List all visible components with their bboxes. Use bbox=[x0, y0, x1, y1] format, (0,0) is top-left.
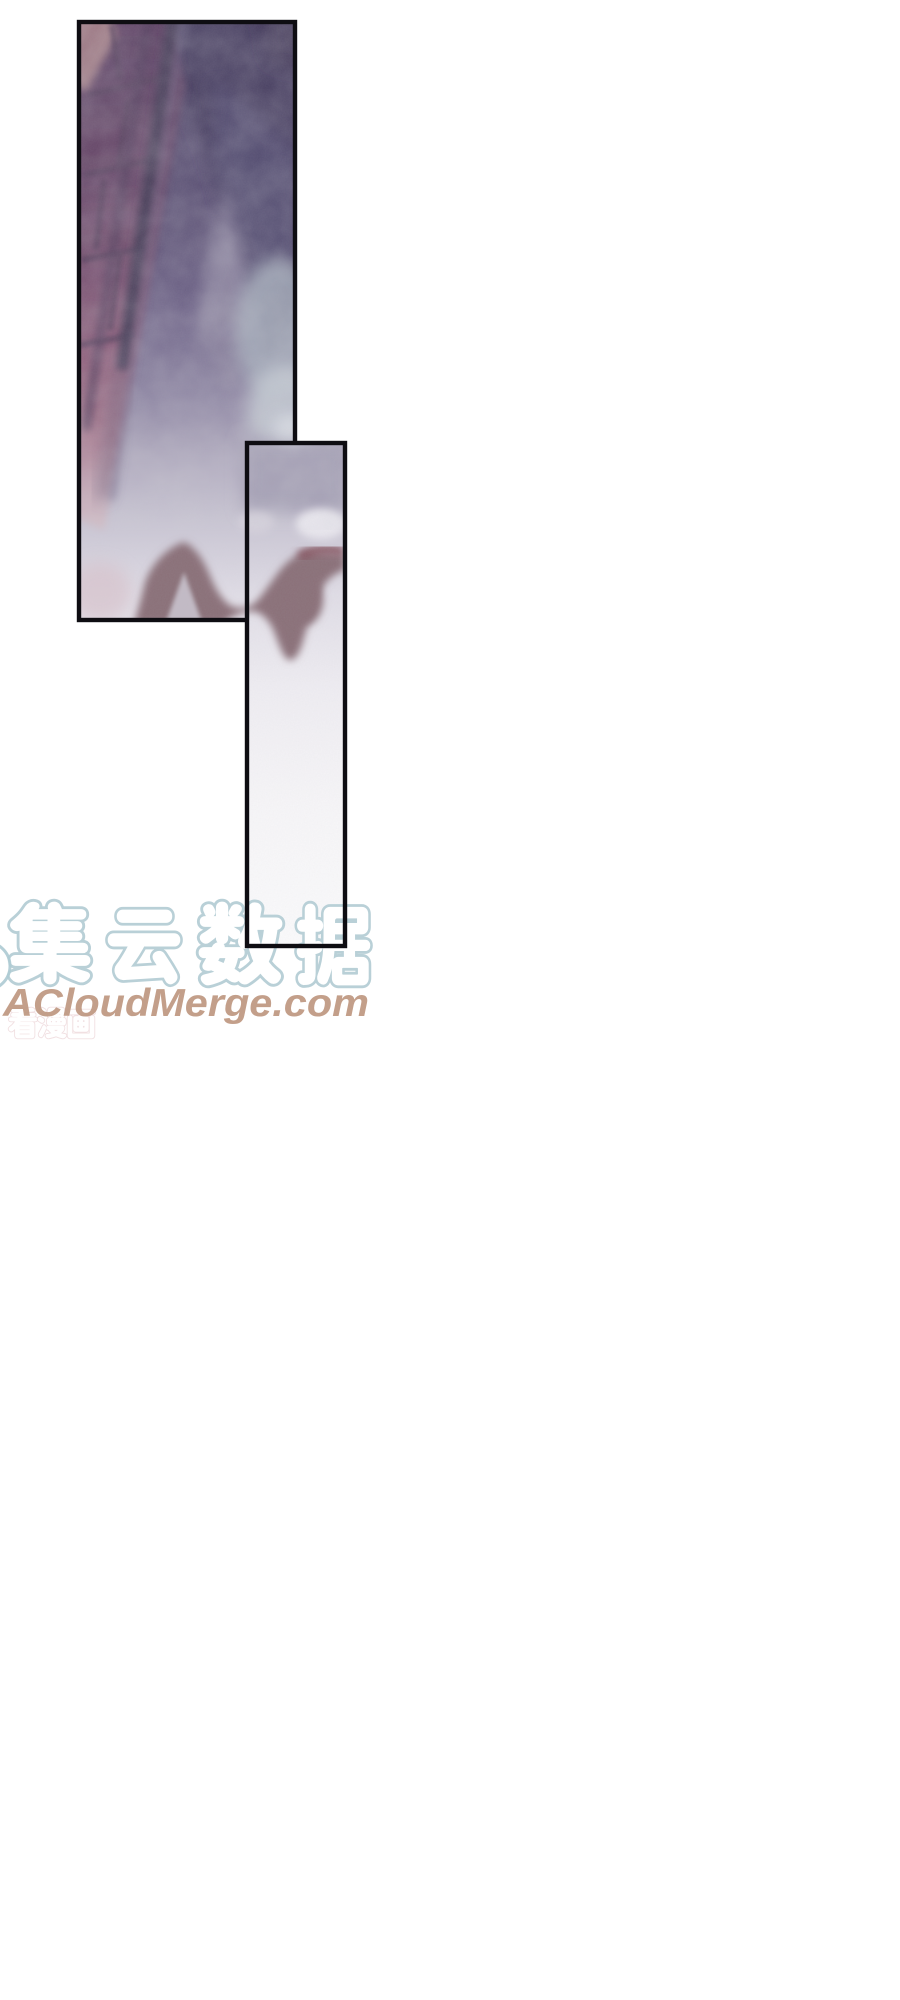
svg-text:ACloudMerge.com: ACloudMerge.com bbox=[2, 982, 369, 1025]
